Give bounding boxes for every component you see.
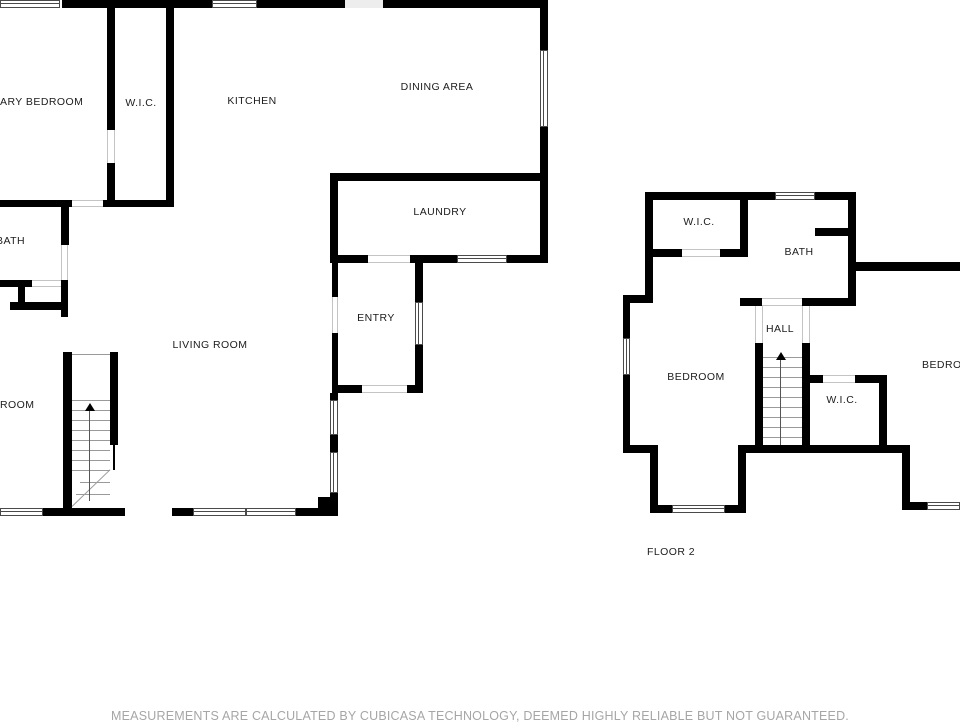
room-label-primary-bedroom: ARY BEDROOM	[0, 96, 83, 108]
wall	[415, 263, 423, 302]
wall	[653, 249, 682, 257]
wall	[720, 249, 748, 257]
disclaimer-text: MEASUREMENTS ARE CALCULATED BY CUBICASA …	[111, 709, 849, 723]
stair-tread	[72, 400, 110, 401]
window	[623, 338, 630, 375]
wall	[0, 280, 32, 287]
door-opening	[72, 200, 103, 207]
wall	[650, 445, 658, 513]
stair-tread	[72, 354, 110, 355]
wall	[63, 352, 72, 516]
wall	[113, 445, 115, 470]
room-label-bedroom-partial: ROOM	[0, 399, 34, 411]
door-opening	[368, 255, 410, 263]
stair-tread	[72, 430, 110, 431]
wall	[848, 192, 856, 303]
room-label-entry: ENTRY	[357, 312, 395, 324]
stair-tread	[763, 397, 802, 398]
stairs-up-arrow-icon	[85, 403, 95, 411]
wall	[623, 375, 630, 453]
wall	[815, 228, 848, 236]
room-label-kitchen: KITCHEN	[227, 95, 276, 107]
window	[246, 508, 296, 516]
window	[415, 302, 423, 345]
stair-tread	[72, 440, 110, 441]
door-opening	[107, 130, 115, 163]
wall	[410, 255, 457, 263]
room-label-wic-3: W.I.C.	[826, 394, 857, 406]
room-label-dining-area: DINING AREA	[401, 81, 474, 93]
stairs-up-arrow-icon	[776, 352, 786, 360]
room-label-bedroom-right: BEDROOM	[922, 359, 960, 371]
wall	[658, 505, 672, 513]
wall	[43, 508, 125, 516]
wall	[623, 303, 630, 340]
wall	[740, 192, 748, 257]
wall	[257, 0, 345, 8]
wall	[740, 298, 762, 306]
door-opening	[332, 297, 338, 333]
wall	[332, 333, 338, 393]
wall	[18, 287, 25, 302]
wall	[330, 181, 338, 263]
wall	[166, 8, 174, 207]
wall	[10, 302, 65, 310]
wall	[296, 508, 338, 516]
wall	[725, 505, 746, 513]
room-label-wic: W.I.C.	[125, 97, 156, 109]
wall	[330, 255, 368, 263]
room-label-wic-2: W.I.C.	[683, 216, 714, 228]
floorplan-canvas: MEASUREMENTS ARE CALCULATED BY CUBICASA …	[0, 0, 960, 720]
wall	[0, 200, 72, 207]
stair-tread	[72, 420, 110, 421]
stair-tread	[763, 387, 802, 388]
door-opening	[61, 245, 68, 280]
wall	[540, 0, 548, 50]
wall	[755, 343, 763, 445]
wall	[62, 0, 212, 8]
wall	[810, 375, 823, 383]
window	[330, 452, 338, 493]
wall	[910, 502, 927, 510]
stair-tread	[80, 482, 110, 483]
wall	[330, 393, 338, 400]
door-opening	[682, 249, 720, 257]
wall	[332, 385, 362, 393]
door-opening	[823, 375, 855, 383]
window	[457, 255, 507, 263]
wall	[802, 343, 810, 445]
wall	[332, 263, 338, 297]
door-opening	[362, 385, 407, 393]
wall	[540, 127, 548, 263]
stair-tread	[72, 469, 111, 507]
stair-tread	[763, 367, 802, 368]
window	[212, 0, 257, 8]
wall	[645, 192, 775, 200]
wall	[61, 280, 68, 317]
window	[672, 505, 725, 513]
room-label-laundry: LAUNDRY	[413, 206, 466, 218]
wall-gap	[345, 0, 383, 8]
wall	[902, 445, 910, 510]
window	[193, 508, 246, 516]
stair-tread	[763, 427, 802, 428]
stairs-arrow-shaft	[780, 360, 781, 445]
window	[0, 508, 43, 516]
wall	[107, 8, 115, 130]
window	[927, 502, 960, 510]
room-label-bath-2: BATH	[784, 246, 813, 258]
wall	[623, 295, 653, 303]
stair-tread	[763, 377, 802, 378]
stairs-arrow-shaft	[89, 411, 90, 501]
window	[0, 0, 60, 8]
wall	[103, 200, 174, 207]
room-label-hall: HALL	[766, 323, 794, 335]
wall	[507, 255, 548, 263]
door-opening	[755, 306, 763, 343]
stair-tread	[72, 460, 110, 461]
stair-tread	[72, 470, 110, 471]
wall	[879, 375, 887, 453]
wall	[383, 0, 540, 8]
wall	[172, 508, 193, 516]
wall	[738, 453, 746, 513]
wall	[645, 192, 653, 303]
window	[330, 400, 338, 435]
stair-tread	[763, 437, 802, 438]
door-opening	[762, 298, 802, 306]
wall	[61, 207, 69, 245]
stair-tread	[76, 494, 110, 495]
window	[775, 192, 815, 200]
stair-tread	[763, 407, 802, 408]
door-opening	[802, 306, 810, 343]
stair-tread	[763, 417, 802, 418]
floor-label: FLOOR 2	[647, 546, 695, 558]
room-label-bath: BATH	[0, 235, 25, 247]
wall	[407, 385, 423, 393]
wall	[802, 298, 856, 306]
window	[540, 50, 548, 127]
wall	[330, 435, 338, 452]
wall	[330, 173, 548, 181]
room-label-living-room: LIVING ROOM	[173, 339, 248, 351]
wall	[856, 262, 960, 271]
stair-tread	[72, 450, 110, 451]
wall	[110, 352, 118, 445]
room-label-bedroom-left: BEDROOM	[667, 371, 724, 383]
door-opening	[32, 280, 61, 287]
